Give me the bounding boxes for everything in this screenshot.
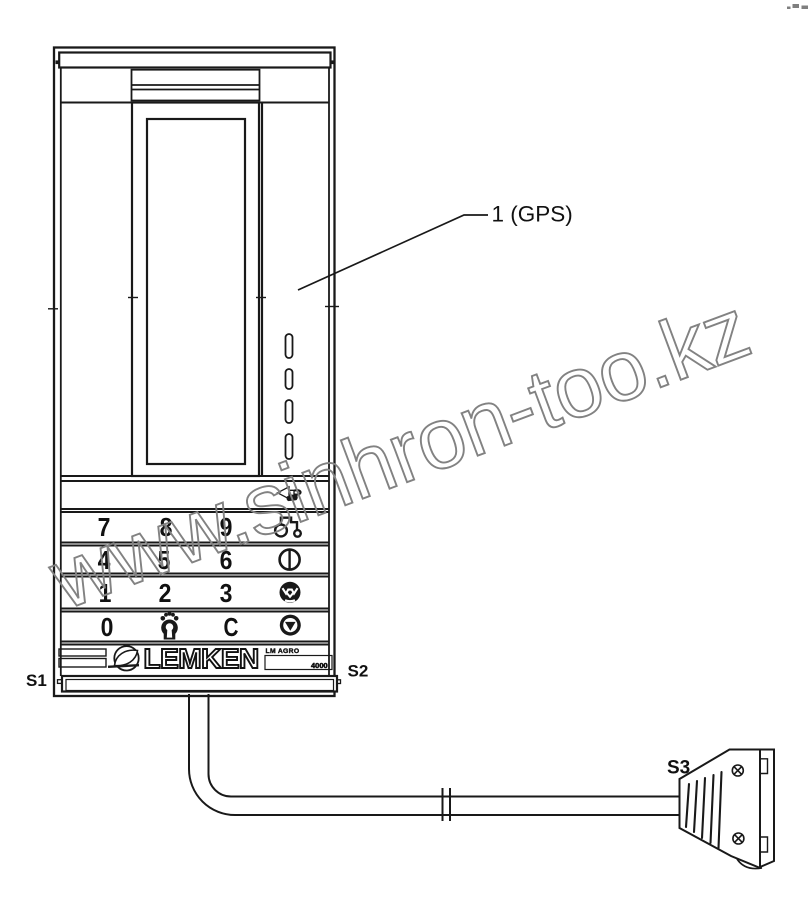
svg-text:1 (GPS): 1 (GPS)	[492, 202, 573, 227]
svg-text:3: 3	[220, 578, 233, 608]
svg-text:0: 0	[101, 612, 114, 642]
svg-text:LEMKEN: LEMKEN	[144, 643, 259, 674]
svg-text:C: C	[224, 612, 239, 642]
svg-text:S2: S2	[348, 662, 369, 681]
svg-text:LM AGRO: LM AGRO	[266, 648, 300, 655]
svg-text:S1: S1	[26, 671, 47, 690]
svg-text:S3: S3	[667, 758, 690, 779]
svg-text:4000: 4000	[311, 661, 328, 670]
